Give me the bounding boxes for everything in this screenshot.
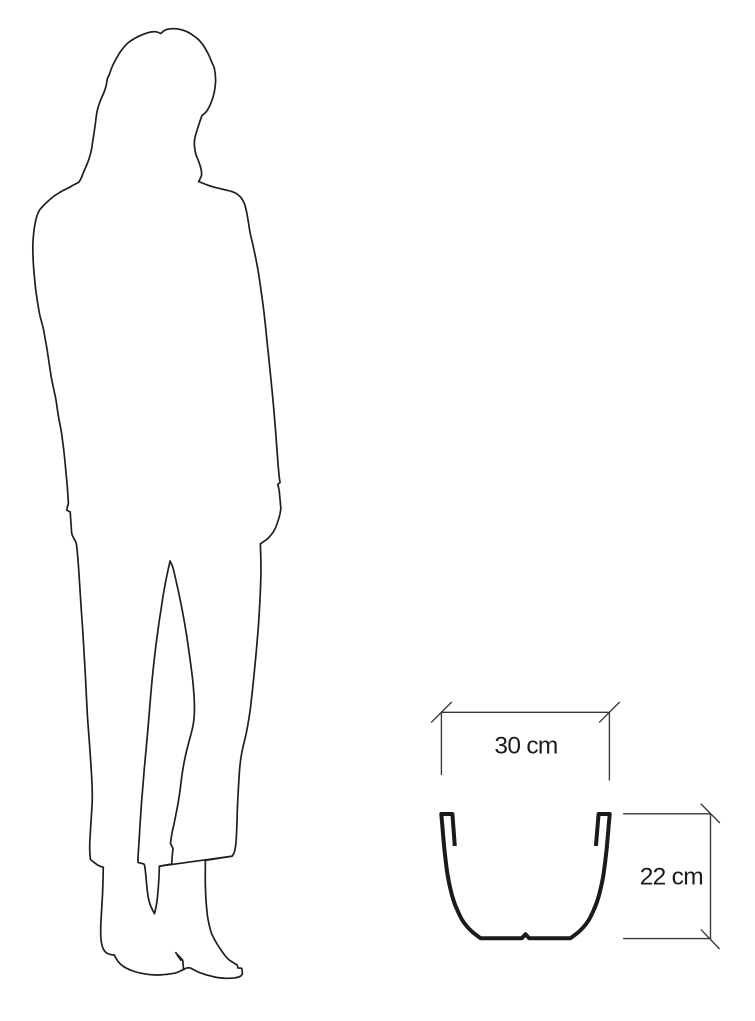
svg-text:22 cm: 22 cm <box>640 864 703 891</box>
svg-text:30 cm: 30 cm <box>494 733 557 760</box>
